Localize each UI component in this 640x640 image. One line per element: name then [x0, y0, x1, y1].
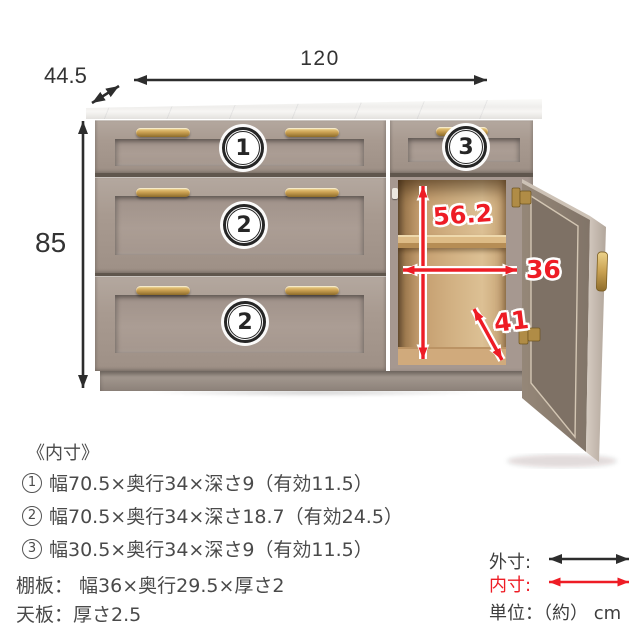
drawer-badge-3: 3	[445, 126, 487, 168]
circled-number-2: 2	[22, 506, 42, 526]
door-edge-side	[586, 216, 606, 462]
drawer-handle	[136, 286, 190, 295]
legend-inner-label: 内寸:	[489, 571, 531, 597]
badge-number: 2	[237, 310, 252, 335]
dim-height-label: 85	[35, 227, 66, 259]
legend-unit-label: 単位：（約） cm	[489, 599, 621, 625]
spec-line-drawer-1: 1 幅70.5×奥行34×深さ9（有効11.5）	[22, 469, 373, 496]
specs-heading: 《内寸》	[27, 439, 99, 465]
circled-number-3: 3	[22, 539, 42, 559]
drawer-badge-2-bottom: 2	[224, 301, 266, 343]
shelf-board	[398, 235, 506, 248]
cabinet-base	[100, 371, 528, 391]
drawer-handle	[136, 188, 190, 197]
drawer-handle	[285, 286, 339, 295]
badge-number: 3	[458, 135, 473, 160]
badge-number: 1	[235, 136, 250, 161]
drawer-handle	[136, 128, 190, 137]
dim-depth-label: 44.5	[44, 63, 87, 89]
spec-line-shelf: 棚板： 幅36×奥行29.5×厚さ2	[16, 571, 284, 598]
cabinet-countertop	[86, 99, 542, 119]
inner-width-label: 36	[526, 255, 561, 284]
depth-arrow	[92, 86, 119, 103]
compartment-floor	[398, 347, 506, 365]
drawer-badge-2-middle: 2	[223, 204, 265, 246]
door-shadow	[507, 455, 617, 468]
spec-text: 幅70.5×奥行34×深さ18.7（有効24.5）	[49, 502, 403, 529]
door-recessed-panel	[531, 196, 578, 437]
spec-line-top: 天板：厚さ2.5	[16, 600, 141, 627]
door-handle	[596, 252, 607, 291]
drawer-badge-1: 1	[222, 127, 264, 169]
drawer-handle	[285, 188, 339, 197]
legend-arrows	[549, 559, 629, 582]
dim-width-label: 120	[290, 47, 350, 71]
magnet-catch	[392, 188, 398, 199]
spec-line-drawer-2: 2 幅70.5×奥行34×深さ18.7（有効24.5）	[22, 502, 403, 529]
inner-height-label: 56.2	[432, 199, 493, 231]
circled-number-1: 1	[22, 473, 42, 493]
spec-text: 幅30.5×奥行34×深さ9（有効11.5）	[49, 535, 373, 562]
inner-diagonal-label: 41	[492, 305, 530, 338]
product-dimension-diagram: 1 2 2 3	[0, 0, 640, 640]
spec-line-drawer-3: 3 幅30.5×奥行34×深さ9（有効11.5）	[22, 535, 373, 562]
drawer-gap	[390, 173, 533, 177]
spec-text: 幅70.5×奥行34×深さ9（有効11.5）	[49, 469, 373, 496]
drawer-handle	[285, 128, 339, 137]
badge-number: 2	[236, 213, 251, 238]
